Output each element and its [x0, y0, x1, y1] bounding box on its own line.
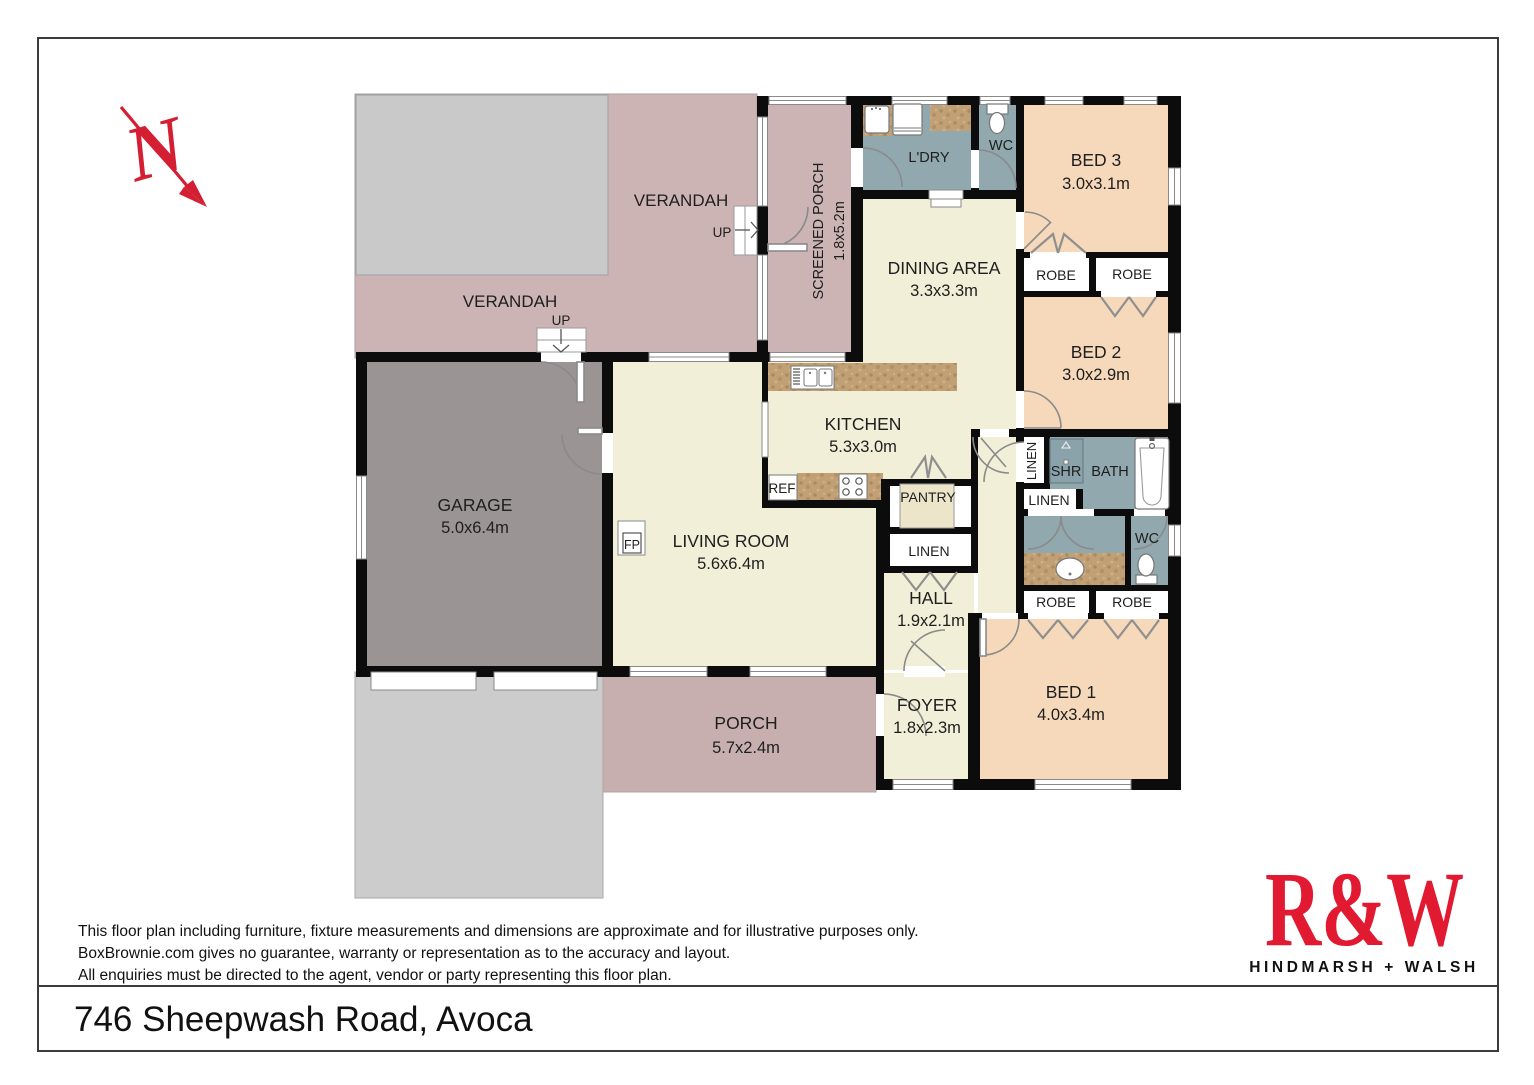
- svg-text:LINEN: LINEN: [1024, 442, 1039, 480]
- svg-text:5.6x6.4m: 5.6x6.4m: [697, 555, 765, 573]
- svg-text:LINEN: LINEN: [908, 543, 949, 559]
- svg-text:FP: FP: [624, 538, 640, 552]
- svg-text:LINEN: LINEN: [1028, 492, 1069, 508]
- svg-text:WC: WC: [1135, 531, 1159, 547]
- svg-text:PORCH: PORCH: [714, 713, 777, 733]
- svg-text:LIVING ROOM: LIVING ROOM: [673, 531, 790, 551]
- svg-text:WC: WC: [989, 138, 1013, 154]
- svg-text:GARAGE: GARAGE: [438, 495, 513, 515]
- svg-text:1.9x2.1m: 1.9x2.1m: [897, 612, 965, 630]
- svg-text:FOYER: FOYER: [897, 695, 957, 715]
- svg-text:BED 3: BED 3: [1071, 150, 1122, 170]
- svg-text:1.8x5.2m: 1.8x5.2m: [832, 201, 848, 261]
- svg-text:L'DRY: L'DRY: [908, 150, 950, 166]
- svg-text:4.0x3.4m: 4.0x3.4m: [1037, 706, 1105, 724]
- svg-text:3.3x3.3m: 3.3x3.3m: [910, 282, 978, 300]
- svg-text:VERANDAH: VERANDAH: [634, 191, 728, 210]
- svg-text:HALL: HALL: [909, 588, 953, 608]
- svg-text:SCREENED PORCH: SCREENED PORCH: [811, 163, 827, 300]
- svg-text:3.0x2.9m: 3.0x2.9m: [1062, 366, 1130, 384]
- svg-text:BED 1: BED 1: [1046, 682, 1097, 702]
- svg-text:ROBE: ROBE: [1112, 266, 1152, 282]
- svg-text:REF: REF: [769, 481, 796, 496]
- svg-text:3.0x3.1m: 3.0x3.1m: [1062, 175, 1130, 193]
- svg-text:ROBE: ROBE: [1112, 594, 1152, 610]
- svg-text:PANTRY: PANTRY: [900, 489, 956, 505]
- svg-text:5.0x6.4m: 5.0x6.4m: [441, 519, 509, 537]
- svg-text:BED 2: BED 2: [1071, 342, 1122, 362]
- svg-text:KITCHEN: KITCHEN: [825, 414, 902, 434]
- svg-text:ROBE: ROBE: [1036, 594, 1076, 610]
- svg-text:ROBE: ROBE: [1036, 267, 1076, 283]
- svg-text:VERANDAH: VERANDAH: [463, 292, 557, 311]
- svg-text:DINING AREA: DINING AREA: [888, 258, 1001, 278]
- svg-text:BATH: BATH: [1091, 464, 1129, 480]
- svg-text:SHR: SHR: [1051, 464, 1082, 480]
- svg-text:5.3x3.0m: 5.3x3.0m: [829, 438, 897, 456]
- svg-text:UP: UP: [713, 225, 732, 240]
- svg-text:UP: UP: [552, 313, 571, 328]
- svg-text:5.7x2.4m: 5.7x2.4m: [712, 739, 780, 757]
- svg-text:1.8x2.3m: 1.8x2.3m: [893, 719, 961, 737]
